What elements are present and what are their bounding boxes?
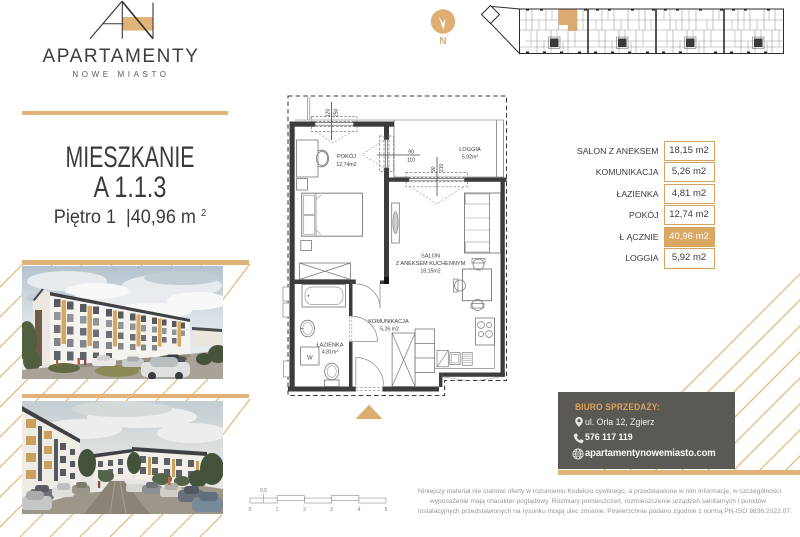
svg-text:5,92m²: 5,92m²	[462, 155, 478, 161]
svg-text:90: 90	[408, 150, 414, 156]
svg-text:Z ANEKSEM KUCHENNYM: Z ANEKSEM KUCHENNYM	[396, 261, 466, 267]
svg-text:12,74m2: 12,74m2	[336, 162, 356, 168]
svg-text:LOGGIA: LOGGIA	[459, 147, 481, 153]
svg-text:250: 250	[334, 108, 340, 117]
svg-text:SALON: SALON	[421, 254, 440, 260]
svg-text:POKÓJ: POKÓJ	[337, 153, 356, 160]
svg-text:4: 4	[358, 507, 361, 513]
svg-text:5,26 m2: 5,26 m2	[380, 327, 399, 333]
svg-text:210: 210	[439, 163, 445, 172]
svg-text:0: 0	[249, 507, 252, 513]
svg-text:KOMUNIKACJA: KOMUNIKACJA	[368, 319, 409, 325]
svg-text:N: N	[439, 36, 446, 47]
svg-text:18,15m2: 18,15m2	[420, 269, 440, 275]
svg-text:2: 2	[303, 507, 306, 513]
svg-text:0,5: 0,5	[260, 488, 267, 494]
svg-text:90: 90	[431, 166, 437, 172]
svg-text:W: W	[307, 356, 313, 362]
svg-text:110: 110	[407, 158, 415, 164]
svg-text:5: 5	[385, 507, 388, 513]
svg-text:120: 120	[326, 108, 332, 117]
svg-text:ŁAZIENKA: ŁAZIENKA	[316, 343, 343, 349]
svg-text:3: 3	[330, 507, 333, 513]
svg-text:4,81m²: 4,81m²	[322, 350, 338, 356]
svg-text:1: 1	[276, 507, 279, 513]
